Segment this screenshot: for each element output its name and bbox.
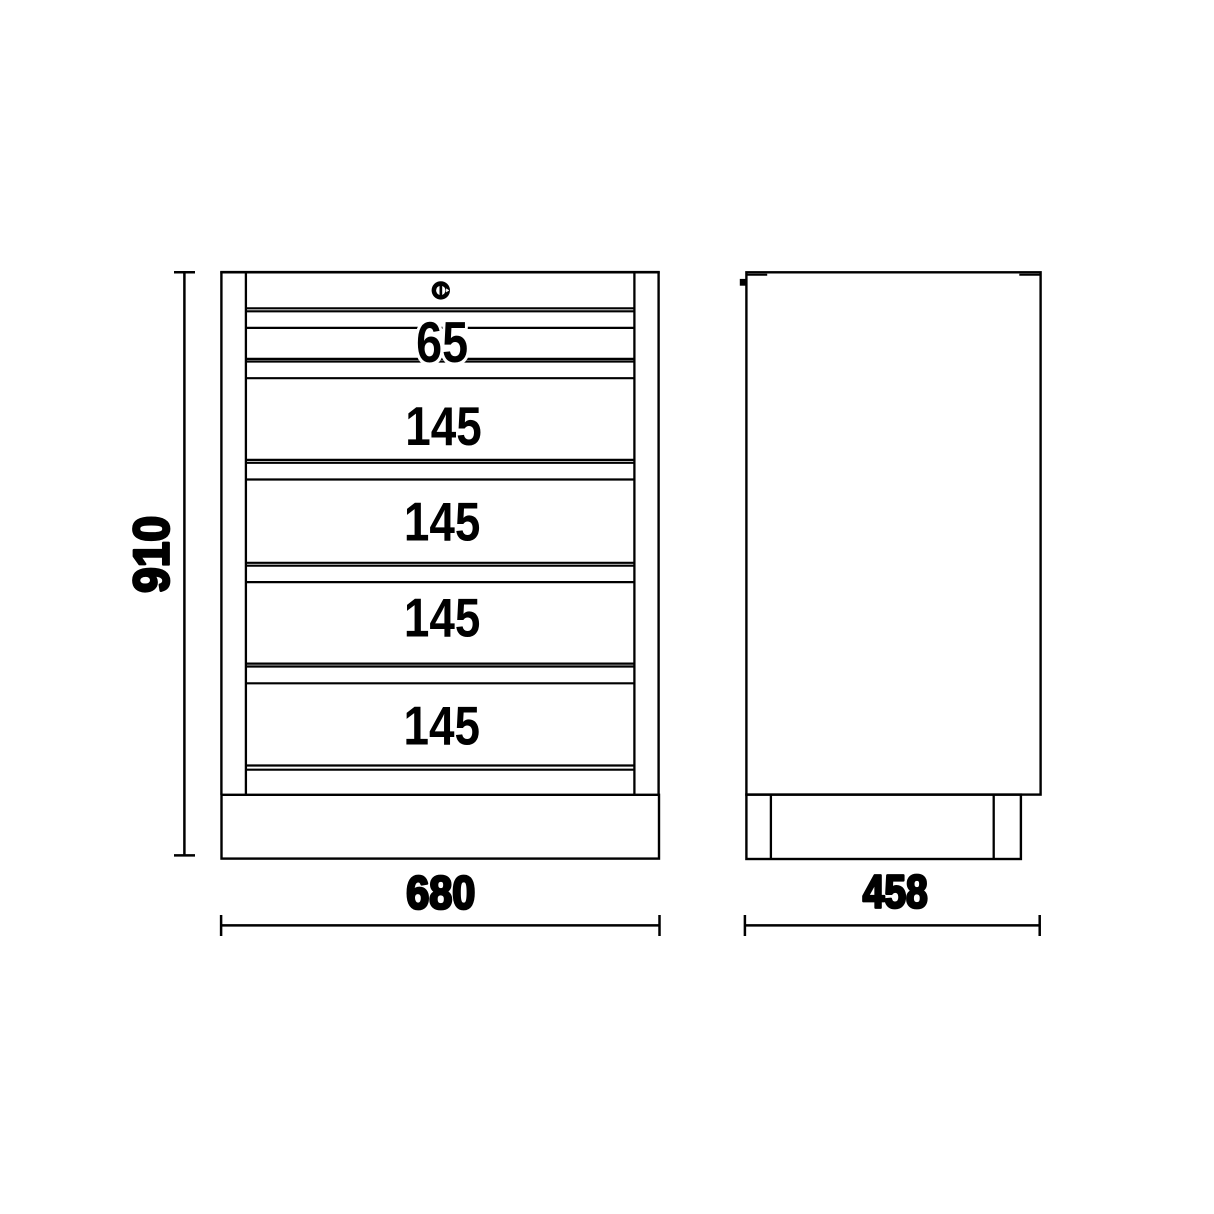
svg-text:680: 680 [406,867,475,919]
svg-text:145: 145 [405,395,482,457]
svg-text:65: 65 [416,311,468,375]
svg-text:145: 145 [404,587,481,649]
svg-text:145: 145 [404,695,481,757]
svg-text:910: 910 [124,516,180,593]
svg-text:145: 145 [404,491,481,553]
svg-text:458: 458 [863,866,928,918]
